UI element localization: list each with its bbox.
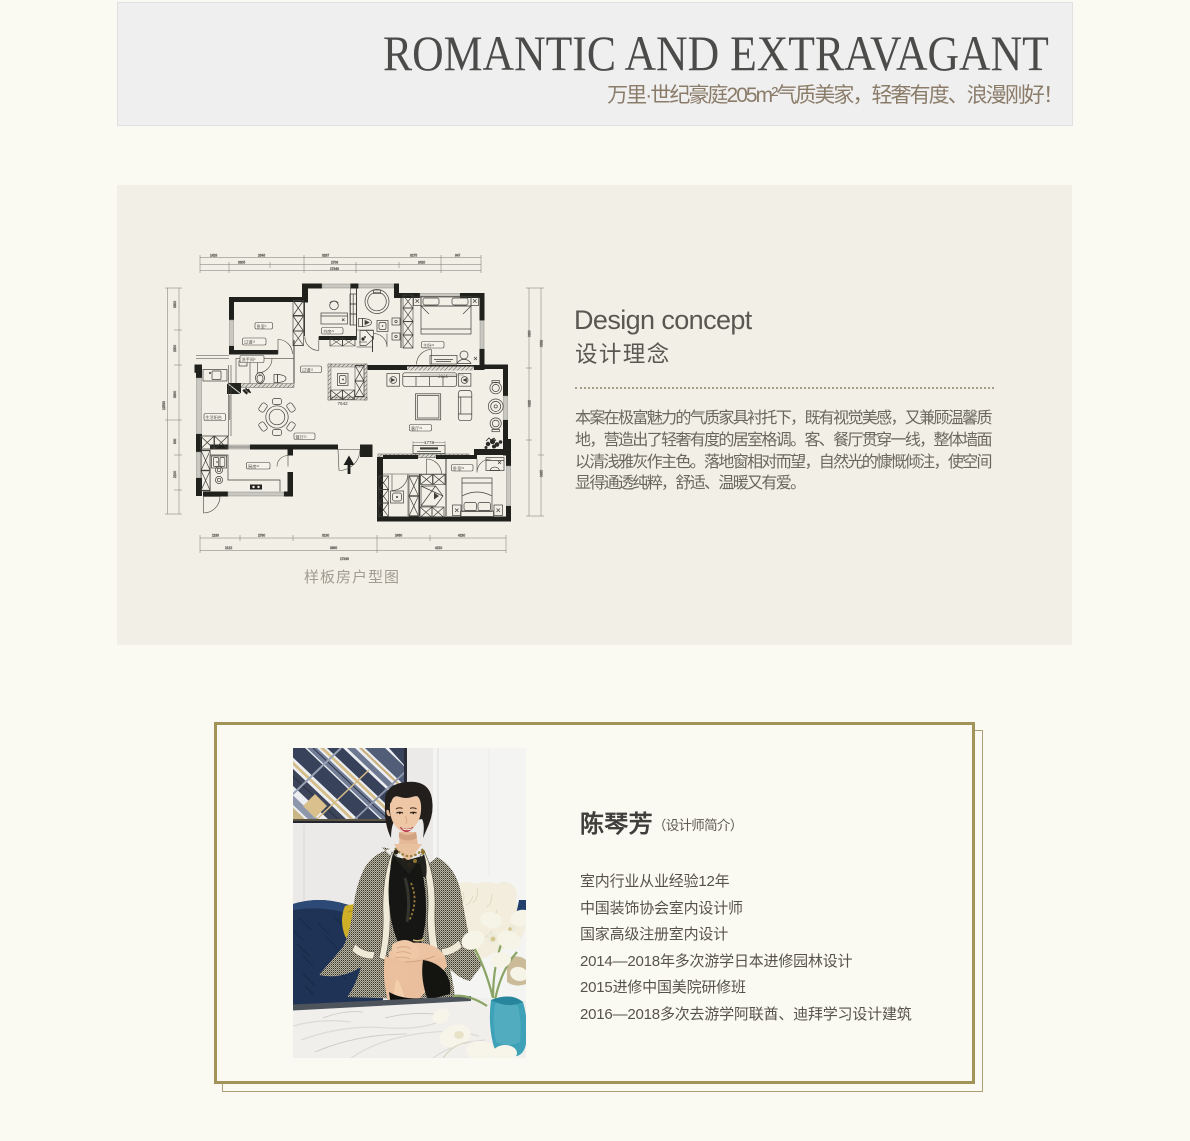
svg-text:2646: 2646: [258, 254, 265, 258]
svg-text:3287: 3287: [322, 254, 329, 258]
svg-text:主卧²²: 主卧²²: [423, 342, 435, 349]
svg-text:7642: 7642: [338, 401, 349, 406]
svg-text:12590: 12590: [162, 401, 166, 410]
svg-text:3300: 3300: [173, 301, 177, 308]
svg-text:3130: 3130: [322, 534, 329, 538]
svg-text:4230: 4230: [458, 534, 465, 538]
svg-text:3590: 3590: [527, 400, 531, 407]
svg-text:过道²²: 过道²²: [302, 366, 314, 373]
svg-text:900: 900: [173, 438, 177, 444]
svg-text:厨房²²: 厨房²²: [248, 463, 260, 470]
svg-text:3600: 3600: [173, 391, 177, 398]
svg-text:947: 947: [455, 254, 461, 258]
svg-text:17340: 17340: [330, 267, 339, 271]
svg-text:3305: 3305: [238, 261, 245, 265]
svg-text:2460: 2460: [395, 534, 402, 538]
svg-text:餐厅²²: 餐厅²²: [296, 433, 308, 440]
svg-text:1778: 1778: [424, 440, 435, 445]
svg-text:2122: 2122: [225, 546, 232, 550]
svg-text:4080: 4080: [527, 330, 531, 337]
svg-text:客厅²²: 客厅²²: [411, 425, 423, 432]
svg-text:1500: 1500: [173, 345, 177, 352]
svg-text:17340: 17340: [340, 557, 349, 561]
svg-text:4210: 4210: [435, 546, 442, 550]
svg-text:过道²²: 过道²²: [244, 339, 256, 346]
svg-text:生活阳台: 生活阳台: [205, 414, 222, 421]
svg-text:洗手间²: 洗手间²: [242, 356, 257, 363]
svg-text:2780: 2780: [258, 534, 265, 538]
svg-text:卧室²: 卧室²: [257, 323, 267, 330]
svg-text:1130: 1130: [212, 534, 219, 538]
svg-text:5980: 5980: [539, 340, 543, 347]
svg-text:3275: 3275: [410, 254, 417, 258]
svg-text:1428: 1428: [210, 254, 217, 258]
svg-text:书房²²: 书房²²: [323, 328, 335, 335]
svg-text:卧室²²: 卧室²²: [453, 465, 465, 472]
svg-text:2860: 2860: [539, 470, 543, 477]
svg-text:3860: 3860: [330, 546, 337, 550]
svg-text:2420: 2420: [418, 261, 425, 265]
svg-text:2100: 2100: [173, 471, 177, 478]
svg-text:2921: 2921: [438, 374, 449, 379]
svg-text:2706: 2706: [331, 261, 338, 265]
